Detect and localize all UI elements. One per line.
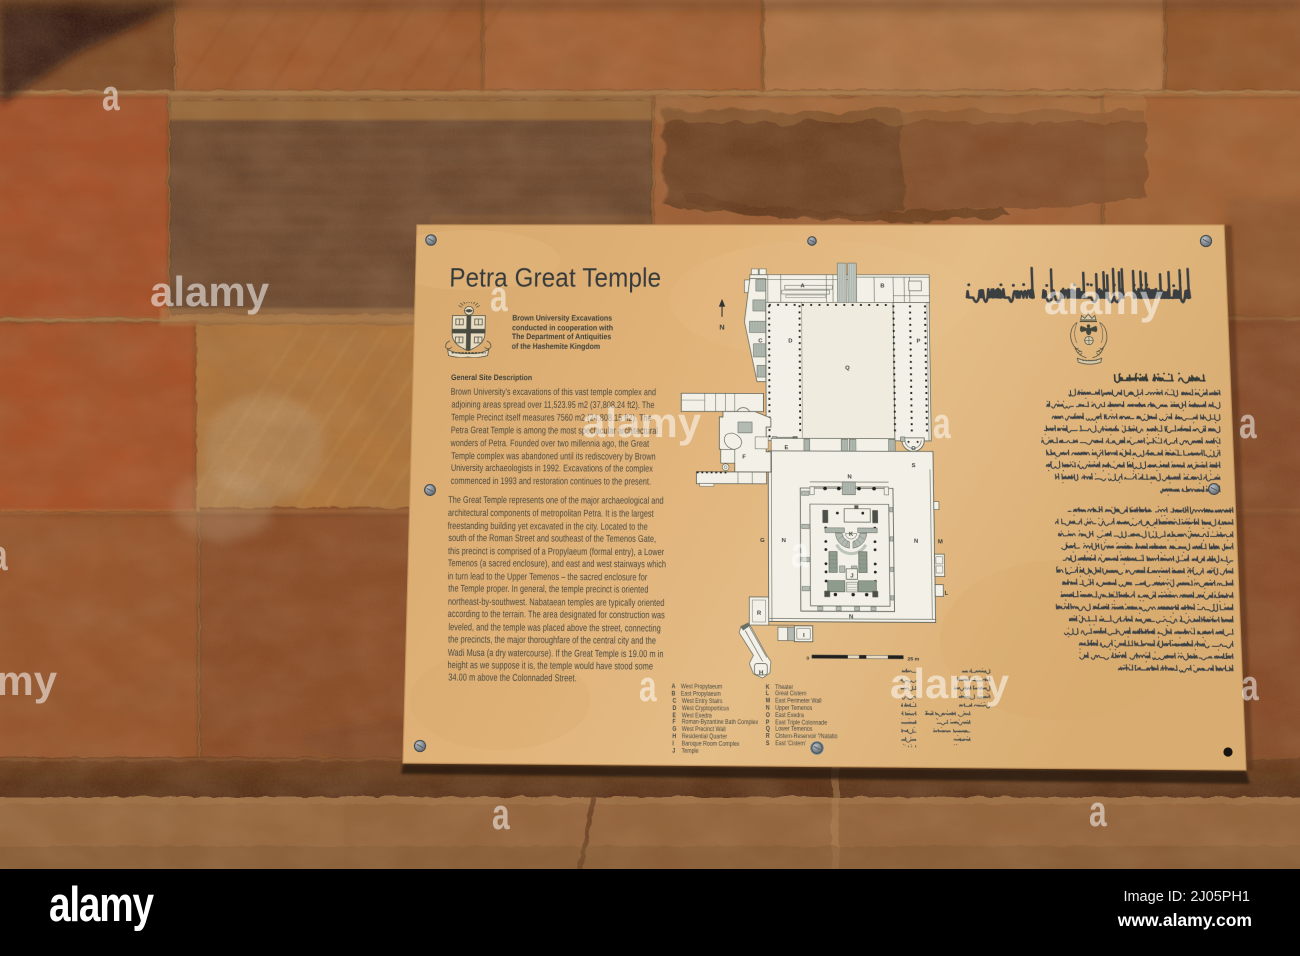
svg-text:J: J [850, 573, 853, 579]
svg-text:H: H [759, 670, 763, 677]
svg-text:A: A [801, 283, 805, 289]
svg-text:N: N [719, 323, 724, 331]
svg-text:D: D [788, 338, 792, 344]
svg-text:E: E [784, 445, 788, 451]
svg-text:B: B [880, 283, 884, 289]
svg-text:N: N [847, 474, 851, 480]
svg-text:N: N [849, 614, 853, 620]
svg-text:K: K [849, 532, 853, 538]
svg-text:Q: Q [845, 365, 850, 371]
svg-text:G: G [760, 538, 765, 544]
svg-text:R: R [757, 611, 761, 617]
svg-text:C: C [758, 338, 762, 344]
svg-text:0: 0 [806, 656, 809, 662]
svg-text:N: N [782, 538, 786, 544]
